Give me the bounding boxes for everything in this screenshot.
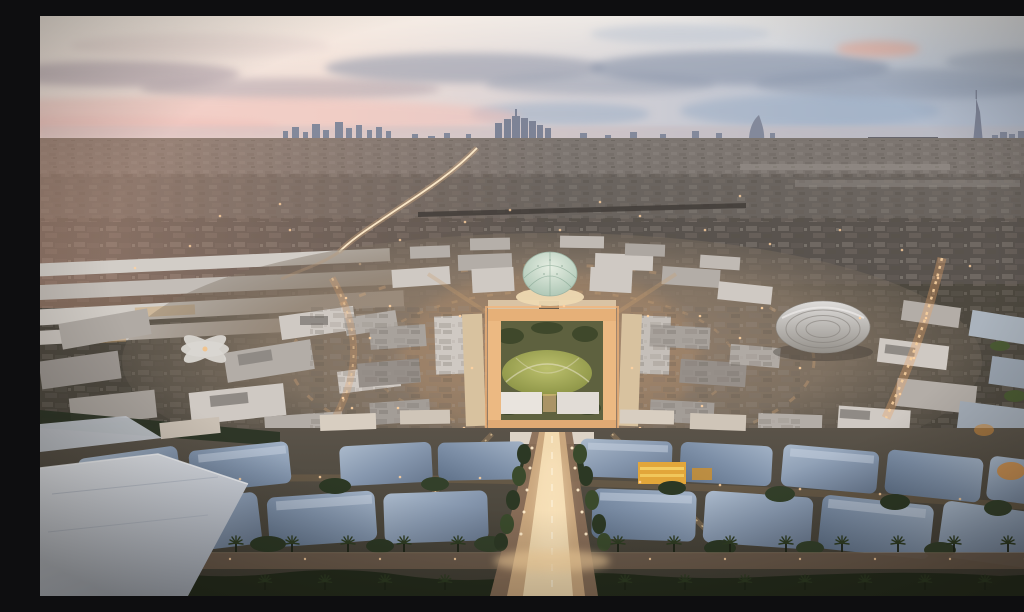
scene-canvas bbox=[40, 16, 1024, 596]
aerial-dusk-photo: Aerial dusk rendering of a circular expo… bbox=[40, 16, 1024, 596]
vignette bbox=[40, 16, 1024, 596]
